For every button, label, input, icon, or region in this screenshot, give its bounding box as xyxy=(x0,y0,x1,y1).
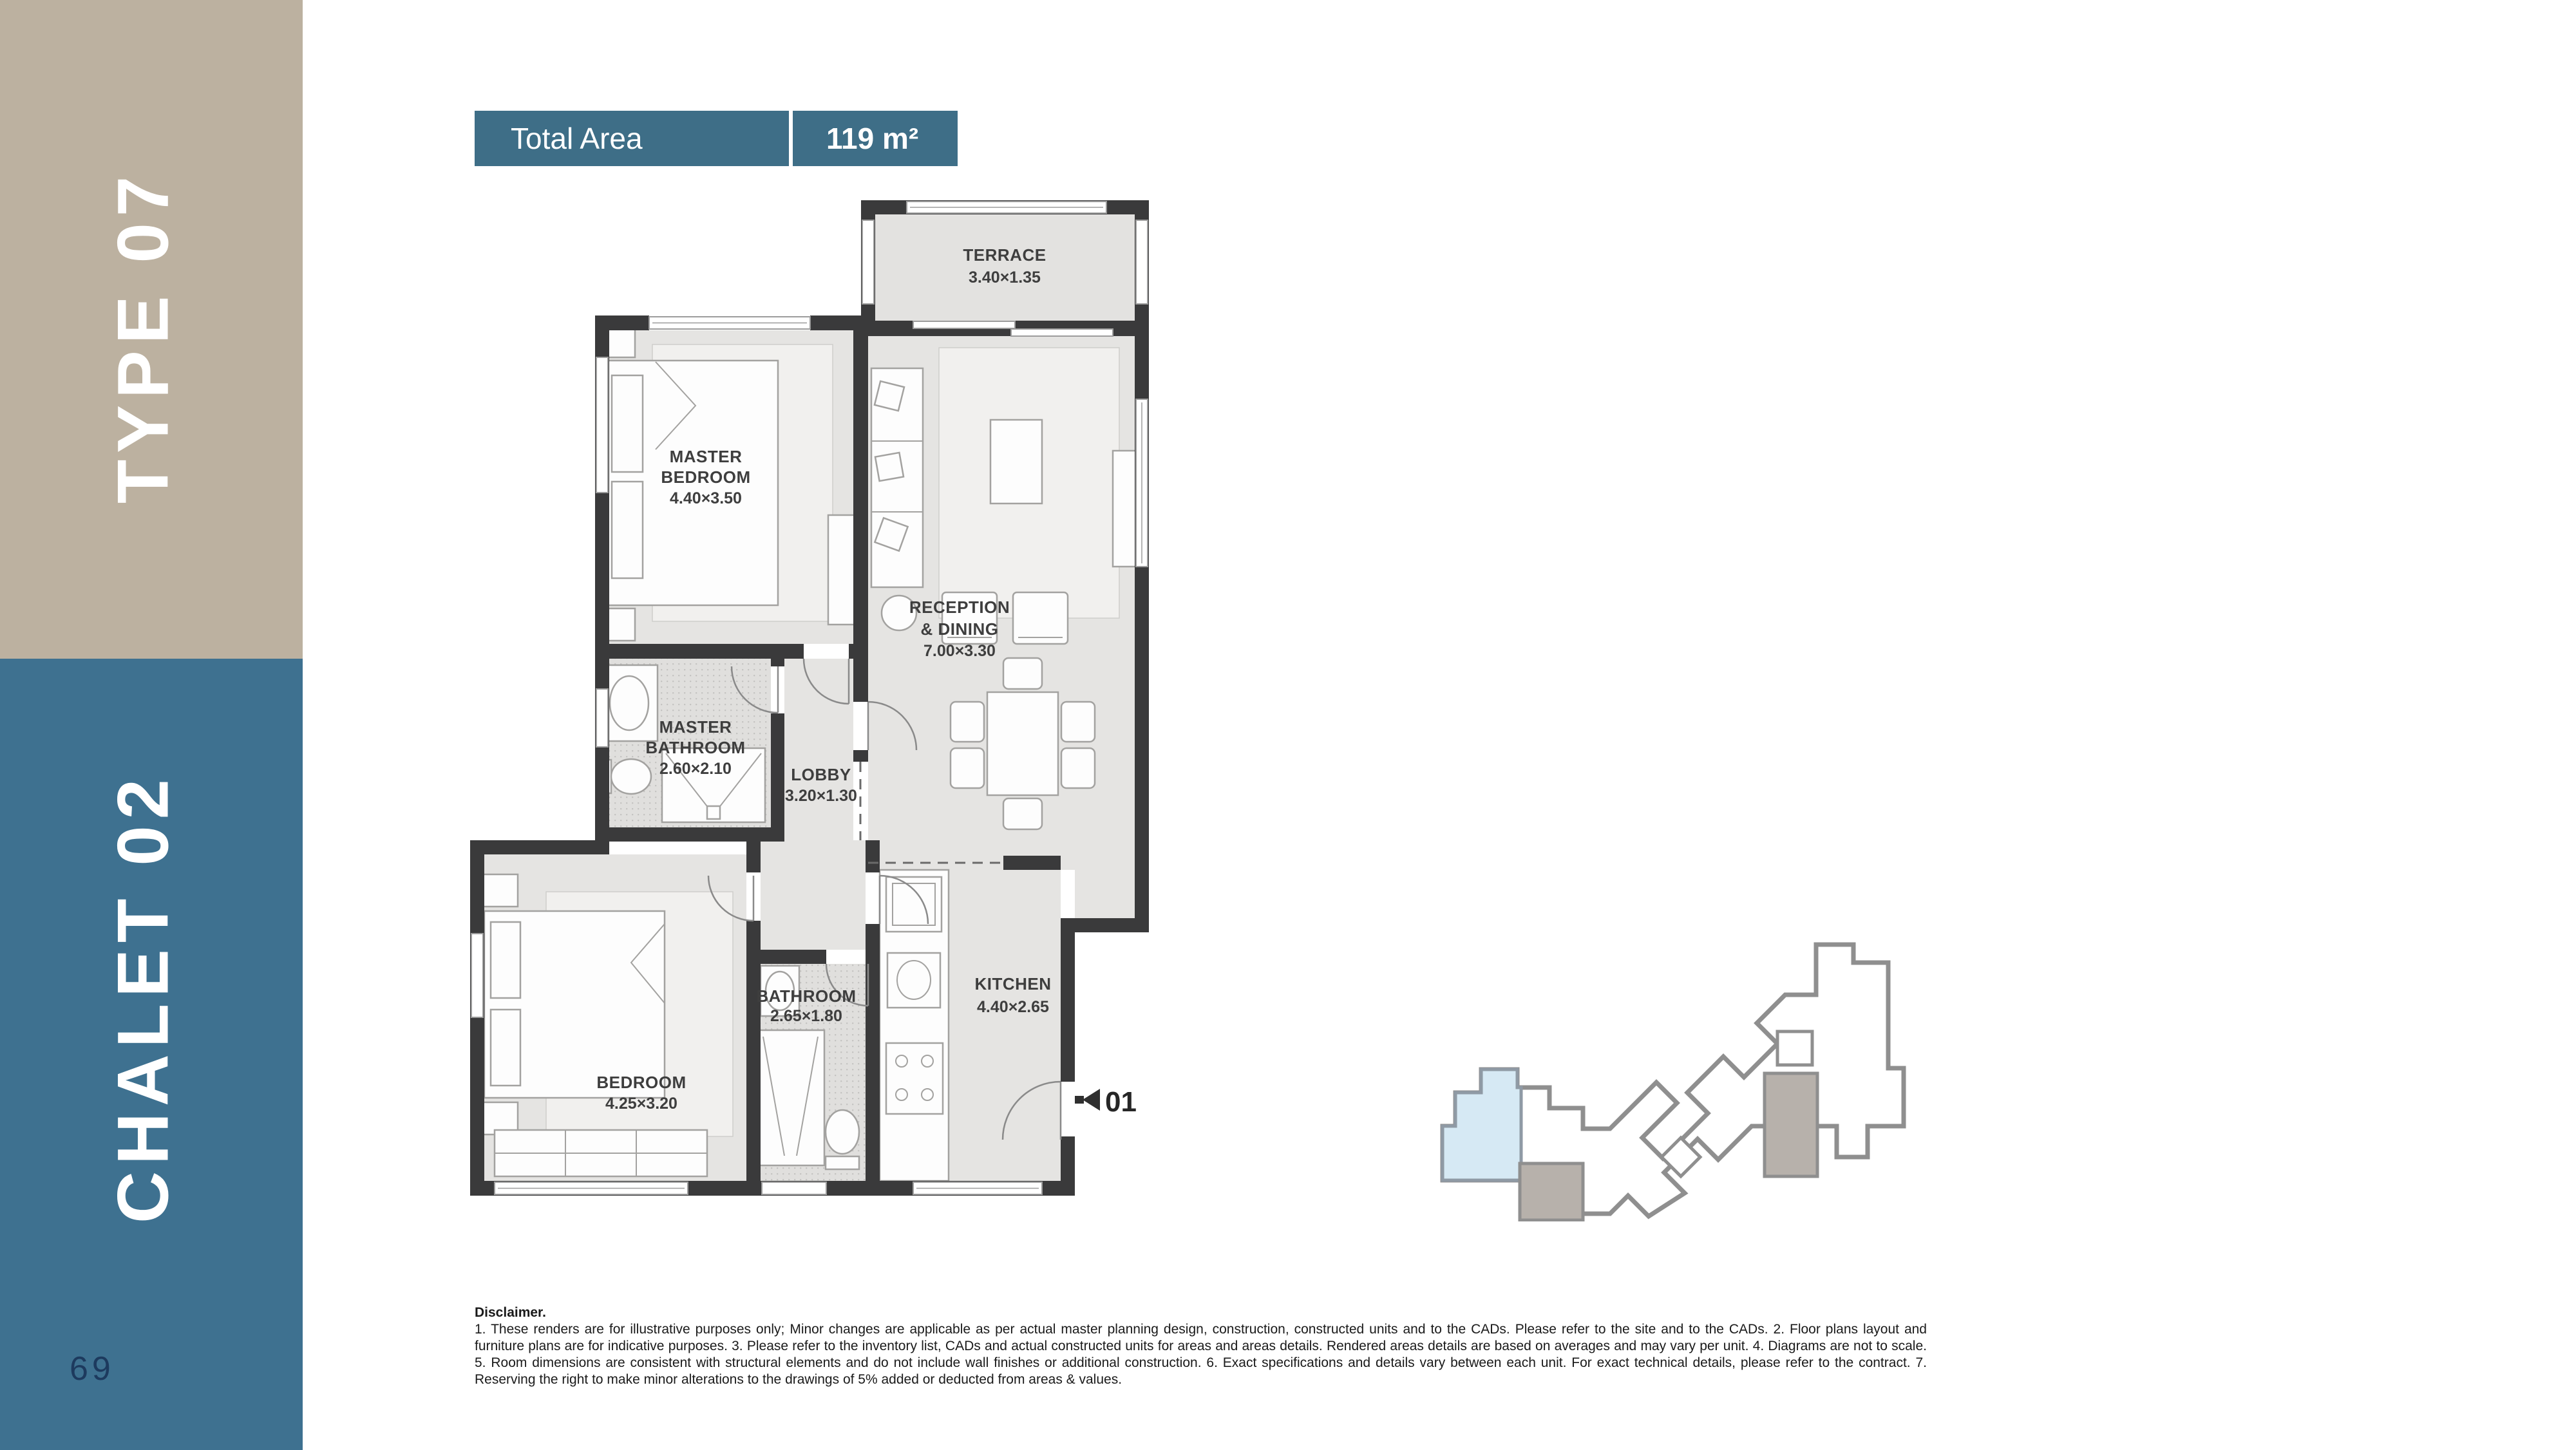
kitchen-label: KITCHEN xyxy=(974,974,1051,993)
disclaimer-title: Disclaimer. xyxy=(475,1304,1927,1321)
svg-text:BEDROOM: BEDROOM xyxy=(661,467,750,487)
sidebar-chalet-block: CHALET 02 69 xyxy=(0,659,303,1450)
disclaimer: Disclaimer. 1. These renders are for ill… xyxy=(475,1304,1927,1388)
svg-text:7.00×3.30: 7.00×3.30 xyxy=(923,642,996,660)
svg-text:2.65×1.80: 2.65×1.80 xyxy=(770,1007,842,1025)
page-number: 69 xyxy=(70,1350,115,1388)
entrance-arrow-icon xyxy=(1083,1089,1100,1111)
type-label: TYPE 07 xyxy=(102,170,185,504)
svg-text:4.40×2.65: 4.40×2.65 xyxy=(977,998,1049,1016)
chalet-label: CHALET 02 xyxy=(102,773,185,1223)
total-area-bar: Total Area 119 m² xyxy=(475,111,958,166)
entrance-number: 01 xyxy=(1105,1086,1137,1118)
kitchen-fixtures xyxy=(880,870,949,1181)
site-block-right xyxy=(1765,1073,1817,1176)
svg-text:4.25×3.20: 4.25×3.20 xyxy=(605,1095,677,1113)
floor-plan: TERRACE 3.40×1.35 MASTER BEDROOM 4.40×3.… xyxy=(469,193,1161,1204)
bathroom-label: BATHROOM xyxy=(756,986,856,1006)
svg-text:4.40×3.50: 4.40×3.50 xyxy=(670,489,742,507)
svg-text:& DINING: & DINING xyxy=(921,619,999,639)
svg-text:2.60×2.10: 2.60×2.10 xyxy=(659,760,732,778)
lobby-label: LOBBY xyxy=(791,765,851,784)
master-bedroom-label: MASTER xyxy=(670,447,743,466)
bedroom-label: BEDROOM xyxy=(596,1073,686,1092)
site-block-left xyxy=(1520,1163,1583,1220)
site-highlight-unit xyxy=(1443,1069,1521,1180)
master-bathroom-label: MASTER xyxy=(659,717,732,737)
svg-text:3.20×1.30: 3.20×1.30 xyxy=(785,787,857,805)
total-area-value: 119 m² xyxy=(793,111,958,166)
site-notch xyxy=(1777,1031,1812,1065)
sidebar-type-block: TYPE 07 xyxy=(0,0,303,659)
site-plan-map xyxy=(1417,925,1906,1221)
svg-text:3.40×1.35: 3.40×1.35 xyxy=(969,268,1041,287)
brochure-page: TYPE 07 CHALET 02 69 Total Area 119 m² xyxy=(0,0,2576,1450)
sidebar: TYPE 07 CHALET 02 69 xyxy=(0,0,303,1450)
svg-text:BATHROOM: BATHROOM xyxy=(645,738,745,757)
total-area-label: Total Area xyxy=(475,111,789,166)
terrace-label: TERRACE xyxy=(963,245,1046,265)
entrance-stem xyxy=(1075,1096,1084,1104)
reception-label: RECEPTION xyxy=(909,598,1010,617)
disclaimer-body: 1. These renders are for illustrative pu… xyxy=(475,1321,1927,1388)
entrance-marker: 01 xyxy=(1075,1086,1137,1118)
